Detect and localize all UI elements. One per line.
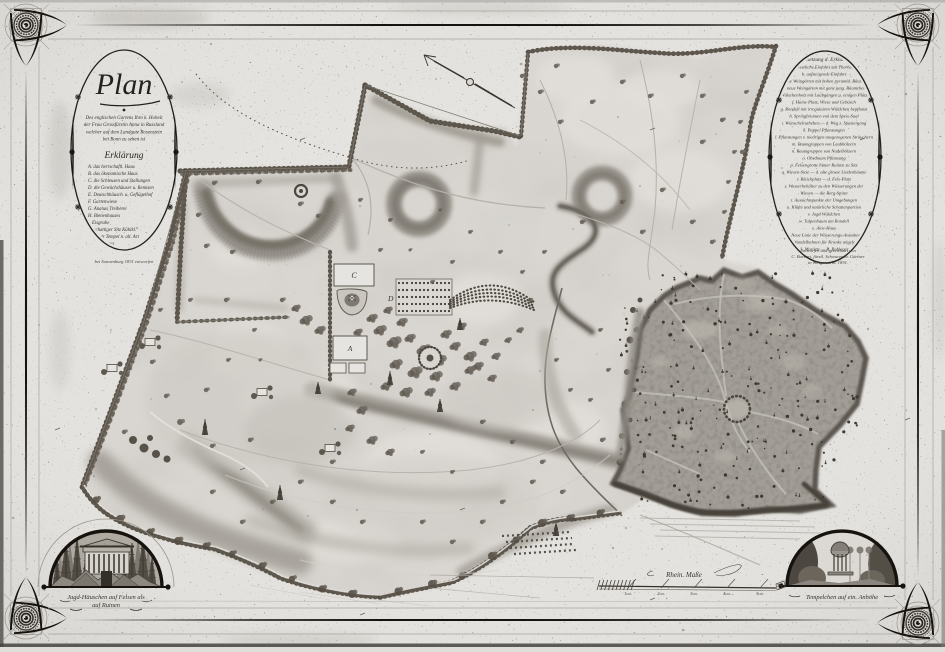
svg-text:F. Gartenwiese: F. Gartenwiese (87, 200, 118, 205)
svg-text:bei Bonn zu sehen ist: bei Bonn zu sehen ist (103, 138, 146, 143)
svg-text:m. Baumgruppen von Laubhölzern: m. Baumgruppen von Laubhölzern (792, 142, 857, 147)
svg-text:s. Wasserbehälter zu den Wässe: s. Wasserbehälter zu den Wässerungen der (785, 184, 864, 189)
svg-text:G. Ananas Treiberei: G. Ananas Treiberei (88, 207, 127, 212)
svg-text:Plan: Plan (95, 68, 153, 101)
svg-text:c. alte Weingärten mit hohen p: c. alte Weingärten mit hohen pyramid. Bä… (781, 79, 868, 84)
svg-text:1oo.: 1oo. (624, 591, 632, 596)
svg-text:a. westliche Einfahrt mit Thor: a. westliche Einfahrt mit Thorhaus (792, 65, 856, 70)
svg-text:A: A (347, 344, 353, 353)
svg-text:B. das ökonomische Haus: B. das ökonomische Haus (88, 172, 138, 177)
svg-text:Rhein. Maße: Rhein. Maße (665, 571, 702, 579)
svg-text:der Frau Grossfürstin Anna in: der Frau Grossfürstin Anna in Russland (84, 123, 165, 128)
svg-text:v. Jagd Wäldchen: v. Jagd Wäldchen (808, 212, 841, 217)
svg-text:l. Pflanzungen v. niedrigen au: l. Pflanzungen v. niedrigen ausgezogenen… (775, 135, 873, 140)
svg-text:Jagd-Häuschen auf Felsen als: Jagd-Häuschen auf Felsen als (67, 594, 145, 601)
svg-text:4oo.: 4oo. (723, 591, 731, 596)
svg-text:u. Klüfte und natürliche Schat: u. Klüfte und natürliche Schattenpartien (787, 205, 862, 210)
svg-text:Des englischen Gartens Ihro k.: Des englischen Gartens Ihro k. Hoheit (84, 116, 163, 121)
svg-text:bei Sonnenburg 1831 entworfen: bei Sonnenburg 1831 entworfen (95, 259, 154, 264)
svg-text:x. Aloe-Haus: x. Aloe-Haus (811, 226, 836, 231)
svg-text:D. die Gewächshäuser u. Remise: D. die Gewächshäuser u. Remisen (87, 186, 154, 191)
svg-text:welcher auf dem Landgute Rosen: welcher auf dem Landgute Rosenstein (86, 130, 163, 135)
svg-text:w. Tulpenbaum am Rondell: w. Tulpenbaum am Rondell (799, 219, 850, 224)
svg-text:A. das herrschaftl. Haus: A. das herrschaftl. Haus (87, 165, 135, 170)
svg-text:E. Deutschhäusch. u. Geflügelh: E. Deutschhäusch. u. Geflügelhof (87, 193, 153, 198)
svg-text:y. Neue Linie der Wässerungs-A: y. Neue Linie der Wässerungs-Anstalten (786, 233, 861, 238)
svg-text:in Wittgenstein. 1831.: in Wittgenstein. 1831. (808, 260, 848, 265)
svg-text:Erklärung: Erklärung (103, 151, 143, 161)
svg-text:q. Wiesen-Sitze — d. alte gros: q. Wiesen-Sitze — d. alte grosse Lindenb… (782, 170, 867, 175)
svg-text:n. Baumgruppen von Nadelhölzer: n. Baumgruppen von Nadelhölzern (792, 149, 857, 154)
svg-text:Entworfen und gezeichnet von: Entworfen und gezeichnet von (799, 248, 856, 253)
svg-text:2oo.: 2oo. (657, 591, 665, 596)
svg-text:5oo.: 5oo. (756, 591, 764, 596)
svg-text:h. Springbrunnen von dem Speis: h. Springbrunnen von dem Speis-Saal (789, 114, 859, 119)
svg-text:d. neue Weingärten mit ganz ju: d. neue Weingärten mit ganz jung. Bäumch… (782, 86, 866, 91)
svg-text:k. Pappel Pflanzungen: k. Pappel Pflanzungen (803, 128, 845, 133)
svg-text:t. Aussichtspunkte der Umgebun: t. Aussichtspunkte der Umgebungen (791, 198, 858, 203)
svg-text:g. Rondell mit irregulairen Wä: g. Rondell mit irregulairen Wäldchen bep… (781, 107, 868, 112)
svg-text:z. Wandelbahnen für Kranke ang: z. Wandelbahnen für Kranke angelegt (788, 240, 859, 245)
svg-text:Wiesen — die Berg-Spitze: Wiesen — die Berg-Spitze (800, 191, 847, 196)
svg-text:b. aufsteigende Einfahrt: b. aufsteigende Einfahrt (802, 72, 847, 77)
svg-text:C: C (351, 271, 357, 280)
svg-text:p. Felsengrotte hinter Ruinen: p. Felsengrotte hinter Ruinen zu Sitz (790, 163, 858, 168)
svg-text:Tempelchen auf ein. Anhöhe: Tempelchen auf ein. Anhöhe (806, 594, 878, 601)
svg-text:H. Bienenhauses: H. Bienenhauses (87, 214, 120, 219)
svg-text:o. Obstbaum Pflanzung: o. Obstbaum Pflanzung (802, 156, 846, 161)
svg-text:i. Wünschelruthchen — d. Weg z: i. Wünschelruthchen — d. Weg z. Spazierg… (782, 121, 867, 126)
svg-text:auf Ruinen: auf Ruinen (92, 602, 120, 609)
svg-text:D: D (387, 294, 394, 303)
svg-text:e. Wälschenholz mit Laubgängen: e. Wälschenholz mit Laubgängen u. einige… (776, 93, 872, 98)
svg-text:r. Bleichplatz — d. Fels-Platz: r. Bleichplatz — d. Fels-Platz (797, 177, 851, 182)
svg-text:3oo.: 3oo. (690, 591, 698, 596)
svg-text:C. die Schleusen und Stallunge: C. die Schleusen und Stallungen (88, 179, 151, 184)
